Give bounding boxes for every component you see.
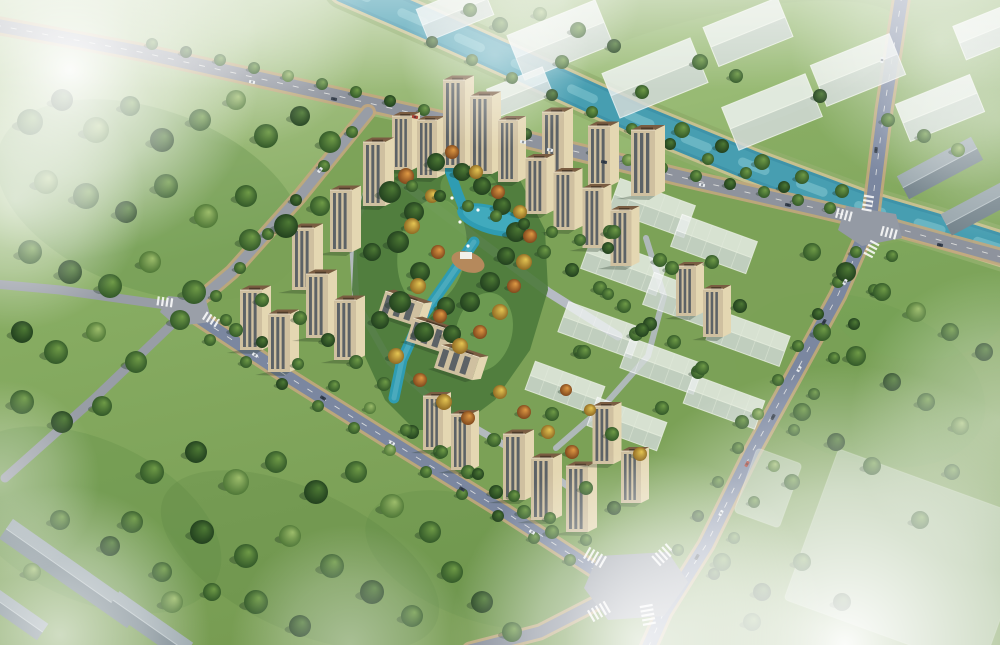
park-pavilion	[460, 252, 472, 259]
aerial-render-image	[0, 0, 1000, 645]
masterplan-svg	[0, 0, 1000, 645]
haze-top	[0, 0, 1000, 90]
